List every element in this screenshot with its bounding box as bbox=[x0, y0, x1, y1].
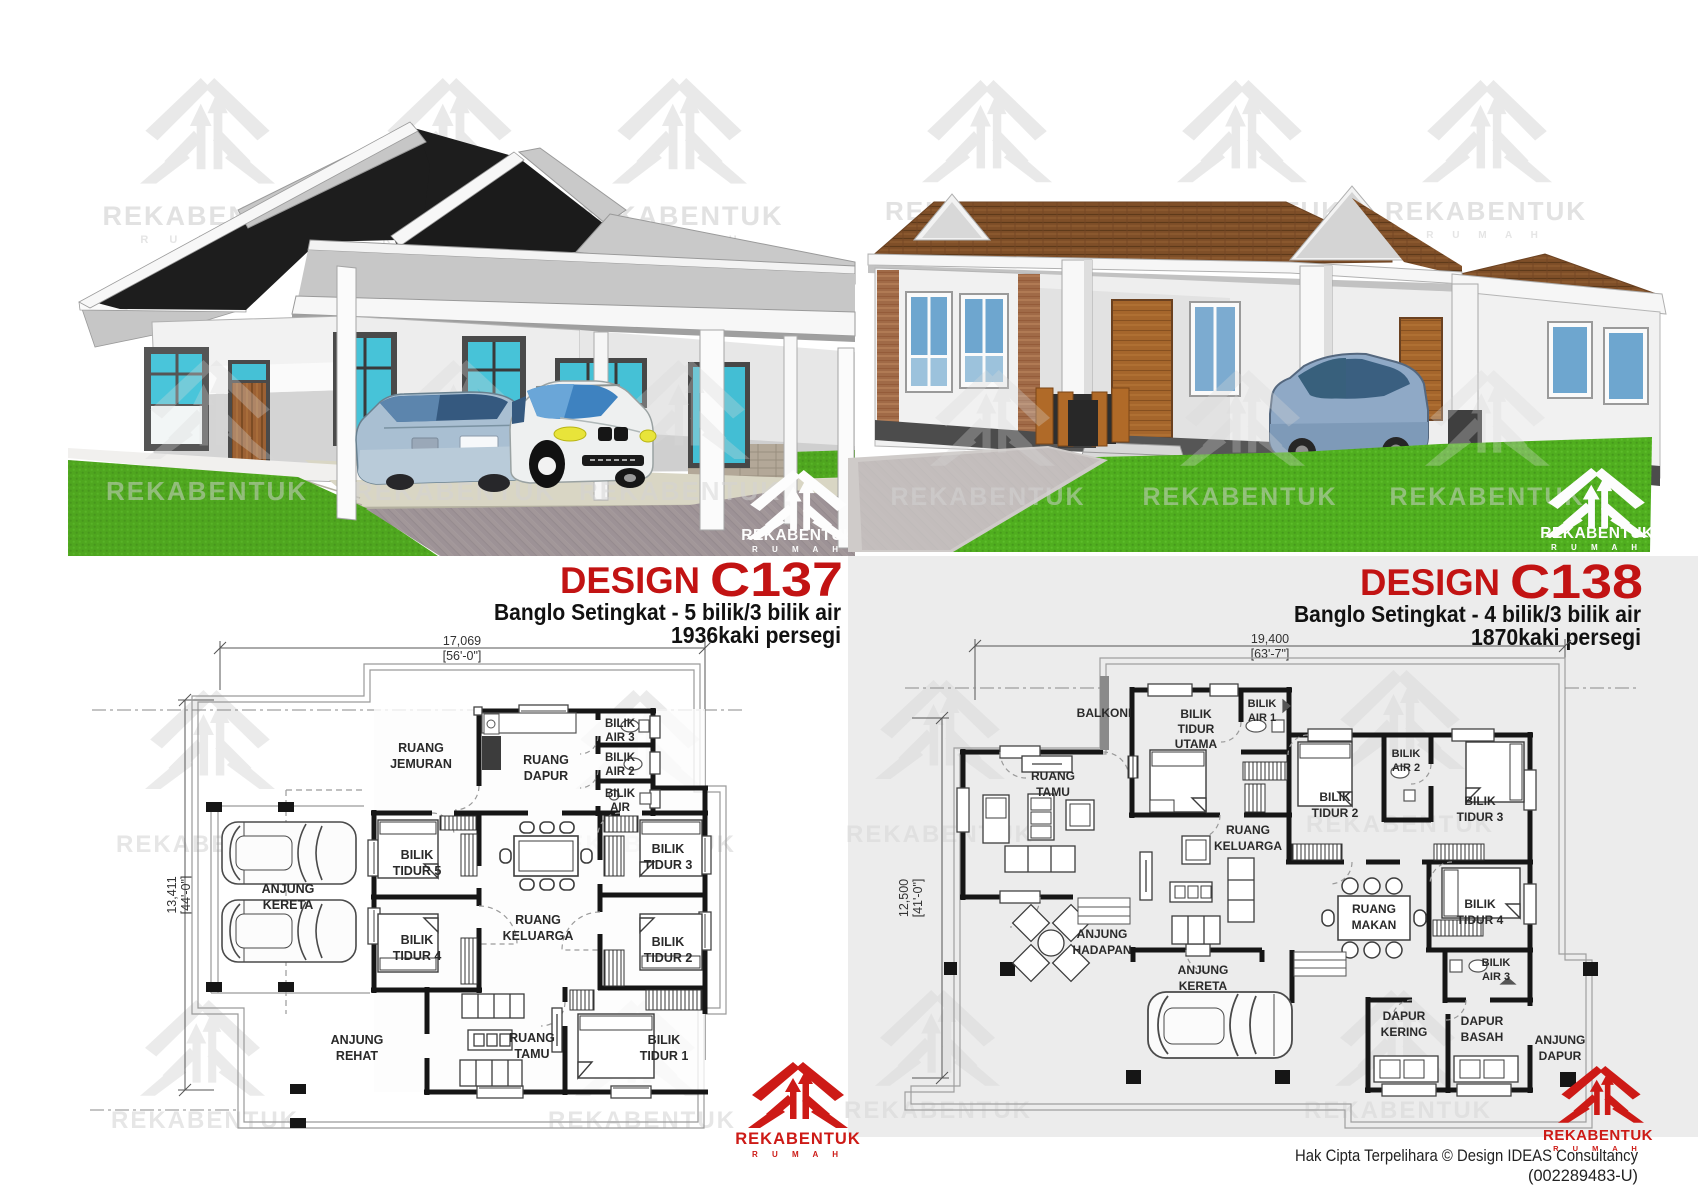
svg-text:REKABENTUK: REKABENTUK bbox=[735, 1130, 861, 1148]
svg-text:TIDUR 4: TIDUR 4 bbox=[393, 949, 442, 963]
svg-text:TIDUR 3: TIDUR 3 bbox=[1457, 810, 1504, 824]
svg-text:RUANG: RUANG bbox=[523, 753, 569, 767]
svg-text:DESIGN: DESIGN bbox=[1360, 562, 1500, 603]
svg-text:ANJUNG: ANJUNG bbox=[1077, 927, 1128, 941]
svg-text:ANJUNG: ANJUNG bbox=[1535, 1033, 1586, 1047]
svg-text:1936kaki persegi: 1936kaki persegi bbox=[671, 622, 841, 648]
svg-text:R U M A H: R U M A H bbox=[1551, 543, 1643, 552]
svg-text:AIR 2: AIR 2 bbox=[605, 766, 634, 778]
svg-text:BILIK: BILIK bbox=[401, 933, 434, 947]
svg-text:DAPUR: DAPUR bbox=[1461, 1014, 1504, 1028]
svg-text:TIDUR 3: TIDUR 3 bbox=[644, 858, 693, 872]
svg-text:BILIK: BILIK bbox=[605, 788, 636, 800]
svg-text:BALKONI: BALKONI bbox=[1077, 706, 1132, 720]
svg-text:REHAT: REHAT bbox=[336, 1049, 378, 1063]
svg-text:TAMU: TAMU bbox=[514, 1047, 549, 1061]
svg-text:RUANG: RUANG bbox=[509, 1031, 555, 1045]
svg-text:ANJUNG: ANJUNG bbox=[262, 882, 315, 896]
svg-text:REKABENTUK: REKABENTUK bbox=[548, 1107, 736, 1134]
svg-text:DAPUR: DAPUR bbox=[1383, 1009, 1426, 1023]
svg-text:DAPUR: DAPUR bbox=[1539, 1049, 1582, 1063]
svg-text:MAKAN: MAKAN bbox=[1352, 918, 1397, 932]
svg-text:ANJUNG: ANJUNG bbox=[331, 1033, 384, 1047]
svg-text:DAPUR: DAPUR bbox=[524, 769, 568, 783]
svg-text:RUANG: RUANG bbox=[398, 741, 444, 755]
svg-text:AIR 2: AIR 2 bbox=[1392, 762, 1420, 774]
svg-text:R U M A H: R U M A H bbox=[752, 545, 844, 554]
svg-text:HADAPAN: HADAPAN bbox=[1072, 943, 1131, 957]
svg-text:BILIK: BILIK bbox=[1248, 698, 1277, 710]
svg-text:REKABENTUK: REKABENTUK bbox=[1143, 483, 1338, 511]
svg-text:[44'-0"]: [44'-0"] bbox=[179, 876, 193, 915]
svg-text:TIDUR 4: TIDUR 4 bbox=[1457, 913, 1504, 927]
svg-text:REKABENTUK: REKABENTUK bbox=[741, 527, 855, 544]
svg-text:TAMU: TAMU bbox=[1036, 785, 1070, 799]
svg-text:AIR 3: AIR 3 bbox=[605, 732, 634, 744]
svg-text:R U M A H: R U M A H bbox=[752, 1150, 844, 1159]
svg-text:RUANG: RUANG bbox=[1031, 769, 1075, 783]
svg-text:BILIK: BILIK bbox=[1464, 897, 1496, 911]
svg-text:BILIK: BILIK bbox=[652, 935, 685, 949]
svg-text:AIR 3: AIR 3 bbox=[1482, 971, 1510, 983]
svg-text:TIDUR 2: TIDUR 2 bbox=[644, 951, 693, 965]
svg-text:(002289483-U): (002289483-U) bbox=[1528, 1166, 1638, 1185]
svg-text:REKABENTUK: REKABENTUK bbox=[891, 483, 1086, 511]
svg-text:AIR: AIR bbox=[610, 802, 631, 814]
svg-text:R U M A H: R U M A H bbox=[1426, 230, 1546, 241]
svg-text:UTAMA: UTAMA bbox=[1175, 737, 1218, 751]
svg-text:12,500: 12,500 bbox=[897, 879, 911, 917]
svg-text:BILIK: BILIK bbox=[1464, 794, 1496, 808]
svg-text:DESIGN: DESIGN bbox=[560, 560, 700, 601]
svg-text:17,069: 17,069 bbox=[443, 634, 481, 648]
svg-text:RUANG: RUANG bbox=[1226, 823, 1270, 837]
svg-text:13,411: 13,411 bbox=[165, 876, 179, 913]
svg-text:KERING: KERING bbox=[1381, 1025, 1428, 1039]
svg-text:TIDUR 5: TIDUR 5 bbox=[393, 864, 442, 878]
svg-text:BILIK: BILIK bbox=[652, 842, 685, 856]
svg-text:BILIK: BILIK bbox=[1180, 707, 1212, 721]
svg-text:BILIK: BILIK bbox=[1482, 957, 1511, 969]
svg-text:KELUARGA: KELUARGA bbox=[503, 929, 574, 943]
svg-text:BILIK: BILIK bbox=[1319, 790, 1351, 804]
svg-text:[56'-0"]: [56'-0"] bbox=[443, 649, 482, 663]
svg-text:TIDUR 1: TIDUR 1 bbox=[640, 1049, 689, 1063]
svg-text:R U M A H: R U M A H bbox=[1553, 1144, 1643, 1153]
svg-text:REKABENTUK: REKABENTUK bbox=[106, 476, 308, 506]
svg-text:REKABENTUK: REKABENTUK bbox=[1543, 1127, 1653, 1144]
svg-text:KERETA: KERETA bbox=[263, 898, 313, 912]
svg-text:TIDUR 2: TIDUR 2 bbox=[1312, 806, 1359, 820]
svg-text:RUANG: RUANG bbox=[515, 913, 561, 927]
svg-text:19,400: 19,400 bbox=[1251, 632, 1289, 646]
svg-text:BILIK: BILIK bbox=[605, 718, 636, 730]
svg-text:ANJUNG: ANJUNG bbox=[1178, 963, 1229, 977]
svg-text:BASAH: BASAH bbox=[1461, 1030, 1504, 1044]
svg-text:[41'-0"]: [41'-0"] bbox=[911, 879, 925, 918]
svg-text:BILIK: BILIK bbox=[605, 752, 636, 764]
svg-text:BILIK: BILIK bbox=[1392, 748, 1421, 760]
svg-text:REKABENTUK: REKABENTUK bbox=[1540, 525, 1654, 542]
svg-text:RUANG: RUANG bbox=[1352, 902, 1396, 916]
svg-text:[63'-7"]: [63'-7"] bbox=[1251, 647, 1290, 661]
svg-text:BILIK: BILIK bbox=[401, 848, 434, 862]
svg-text:TIDUR: TIDUR bbox=[1178, 722, 1215, 736]
svg-text:KERETA: KERETA bbox=[1179, 979, 1228, 993]
svg-text:REKABENTUK: REKABENTUK bbox=[1385, 196, 1587, 226]
svg-text:JEMURAN: JEMURAN bbox=[390, 757, 452, 771]
svg-text:REKABENTUK: REKABENTUK bbox=[111, 1107, 299, 1134]
svg-text:KELUARGA: KELUARGA bbox=[1214, 839, 1282, 853]
svg-text:AIR 1: AIR 1 bbox=[1248, 712, 1276, 724]
svg-text:BILIK: BILIK bbox=[648, 1033, 681, 1047]
